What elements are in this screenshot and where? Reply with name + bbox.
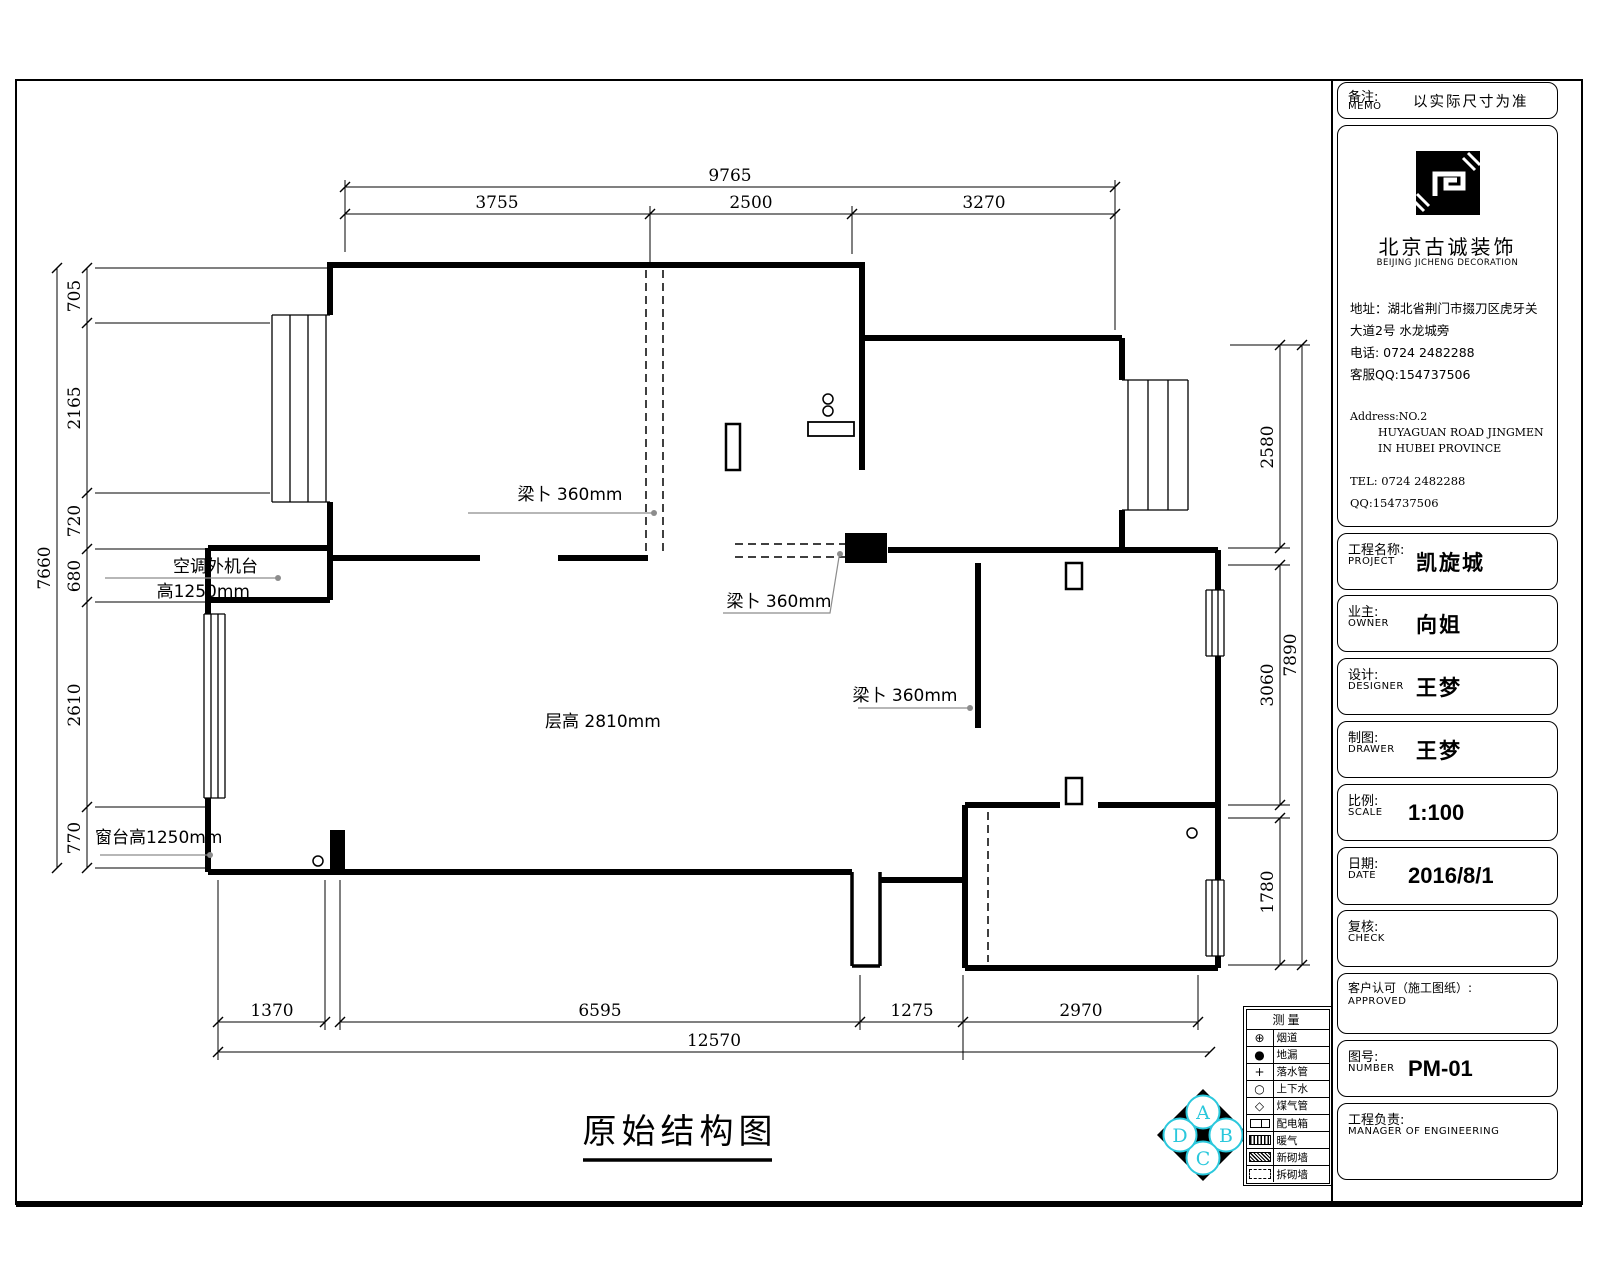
beam-label-2: 梁卜 360mm — [727, 592, 832, 612]
diamond-letter-a: A — [1195, 1102, 1210, 1124]
legend-row: 新砌墙 — [1247, 1148, 1329, 1165]
legend-row: 暖气 — [1247, 1131, 1329, 1148]
window-sill-label: 窗台高1250mm — [95, 828, 222, 848]
dim-top-seg3: 3270 — [962, 193, 1005, 213]
dashed-beam-lines — [646, 270, 988, 962]
floor-drain-symbol: ● — [1247, 1047, 1274, 1063]
walls — [208, 262, 1218, 968]
dim-top-overall: 9765 — [708, 166, 751, 186]
manager-box: 工程负责: MANAGER OF ENGINEERING — [1337, 1103, 1558, 1180]
plan-title: 原始结构图 — [560, 1104, 800, 1153]
company-qq-cn: 客服QQ:154737506 — [1350, 364, 1538, 386]
company-address-en: Address:NO.2 HUYAGUAN ROAD JINGMEN IN HU… — [1350, 409, 1544, 457]
fixtures — [313, 394, 1197, 866]
legend-row: ◇煤气管 — [1247, 1097, 1329, 1114]
gas-pipe-symbol: ◇ — [1247, 1098, 1274, 1114]
company-qq-en: QQ:154737506 — [1350, 496, 1439, 510]
project-box: 工程名称: PROJECT 凯旋城 — [1337, 533, 1558, 590]
downpipe-symbol: + — [1247, 1064, 1274, 1080]
dimension-top: 9765 3755 2500 3270 — [340, 166, 1120, 330]
dim-top-seg2: 2500 — [729, 193, 772, 213]
check-box: 复核: CHECK — [1337, 910, 1558, 967]
company-address-cn: 地址：湖北省荆门市掇刀区虎牙关 大道2号 水龙城旁 电话: 0724 24822… — [1350, 298, 1538, 386]
company-phone-cn: 电话: 0724 2482288 — [1350, 342, 1538, 364]
diamond-letter-c: C — [1196, 1148, 1211, 1170]
company-box: 北京古诚装饰 BEIJING JICHENG DECORATION 地址：湖北省… — [1337, 125, 1558, 527]
designer-value: 王梦 — [1416, 672, 1462, 702]
memo-value: 以实际尺寸为准 — [1413, 90, 1529, 111]
legend-row: ⊕烟道 — [1247, 1029, 1329, 1046]
dim-bottom-overall: 12570 — [687, 1031, 741, 1051]
windows — [204, 315, 1224, 956]
legend-row: 拆砌墙 — [1247, 1165, 1329, 1182]
legend-row: ●地漏 — [1247, 1046, 1329, 1063]
ac-platform-label-line1: 空调外机台 — [173, 557, 258, 577]
dim-right-seg1: 2580 — [1258, 425, 1278, 468]
company-name-cn: 北京古诚装饰 — [1338, 231, 1557, 260]
drawer-value: 王梦 — [1416, 735, 1462, 765]
heating-symbol — [1247, 1132, 1274, 1148]
ac-platform-label-line2: 高1250mm — [157, 582, 250, 602]
dim-right-overall: 7890 — [1281, 633, 1301, 676]
beam-label-3: 梁卜 360mm — [853, 686, 958, 706]
diamond-letter-d: D — [1172, 1125, 1187, 1147]
floor-height-label: 层高 2810mm — [545, 712, 661, 732]
dim-left-seg2: 2165 — [65, 386, 85, 429]
beam-label-1: 梁卜 360mm — [518, 485, 623, 505]
company-logo-icon — [1413, 148, 1483, 218]
dim-right-seg2: 3060 — [1258, 663, 1278, 706]
designer-box: 设计: DESIGNER 王梦 — [1337, 658, 1558, 715]
number-box: 图号: NUMBER PM-01 — [1337, 1040, 1558, 1097]
dim-left-seg4: 680 — [65, 560, 85, 592]
dim-left-seg5: 2610 — [65, 683, 85, 726]
owner-box: 业主: OWNER 向姐 — [1337, 595, 1558, 652]
dim-bottom-seg2: 6595 — [578, 1001, 621, 1021]
dim-left-seg6: 770 — [65, 822, 85, 854]
legend-header: 测量 — [1247, 1010, 1329, 1029]
date-value: 2016/8/1 — [1408, 863, 1494, 889]
dimension-right: 2580 3060 1780 7890 — [1228, 340, 1310, 970]
legend-row: +落水管 — [1247, 1063, 1329, 1080]
company-tel-en: TEL: 0724 2482288 — [1350, 474, 1465, 488]
new-wall-symbol — [1247, 1149, 1274, 1165]
abcd-diamond-logo: A B C D — [1156, 1088, 1250, 1182]
flue-symbol: ⊕ — [1247, 1030, 1274, 1046]
dist-box-symbol — [1247, 1115, 1274, 1131]
drawer-box: 制图: DRAWER 王梦 — [1337, 721, 1558, 778]
owner-value: 向姐 — [1416, 609, 1462, 639]
project-value: 凯旋城 — [1416, 547, 1485, 577]
diamond-letter-b: B — [1219, 1125, 1233, 1147]
legend-table: 测量 ⊕烟道 ●地漏 +落水管 ○上下水 ◇煤气管 配电箱 暖气 新砌墙 拆砌墙 — [1243, 1006, 1332, 1186]
date-box: 日期: DATE 2016/8/1 — [1337, 847, 1558, 905]
company-name-en: BEIJING JICHENG DECORATION — [1338, 258, 1557, 268]
dim-bottom-seg4: 2970 — [1059, 1001, 1102, 1021]
dim-left-overall: 7660 — [35, 546, 55, 589]
dim-right-seg3: 1780 — [1258, 870, 1278, 913]
number-value: PM-01 — [1408, 1056, 1473, 1082]
demolish-wall-symbol — [1247, 1166, 1274, 1182]
dim-left-seg3: 720 — [65, 505, 85, 537]
dim-bottom-seg1: 1370 — [250, 1001, 293, 1021]
legend-row: 配电箱 — [1247, 1114, 1329, 1131]
memo-box: 备注: MEMO 以实际尺寸为准 — [1337, 82, 1558, 119]
dim-left-seg1: 705 — [65, 280, 85, 312]
scale-value: 1:100 — [1408, 800, 1464, 826]
dim-top-seg1: 3755 — [475, 193, 518, 213]
approved-box: 客户认可（施工图纸）: APPROVED — [1337, 973, 1558, 1034]
legend-row: ○上下水 — [1247, 1080, 1329, 1097]
scale-box: 比例: SCALE 1:100 — [1337, 784, 1558, 841]
dim-bottom-seg3: 1275 — [890, 1001, 933, 1021]
water-pipe-symbol: ○ — [1247, 1081, 1274, 1097]
